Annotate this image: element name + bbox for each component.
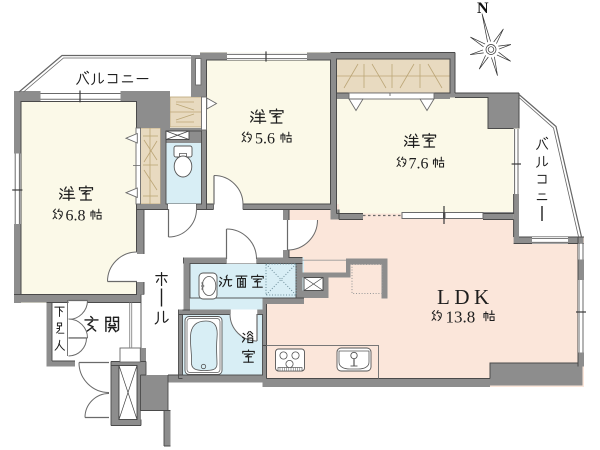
svg-text:LDK: LDK [437,285,494,309]
svg-text:5.6: 5.6 [255,131,275,148]
svg-text:7.6: 7.6 [409,156,429,173]
svg-text:N: N [477,0,489,17]
svg-text:6.8: 6.8 [66,208,86,225]
svg-text:13.8: 13.8 [446,308,476,327]
